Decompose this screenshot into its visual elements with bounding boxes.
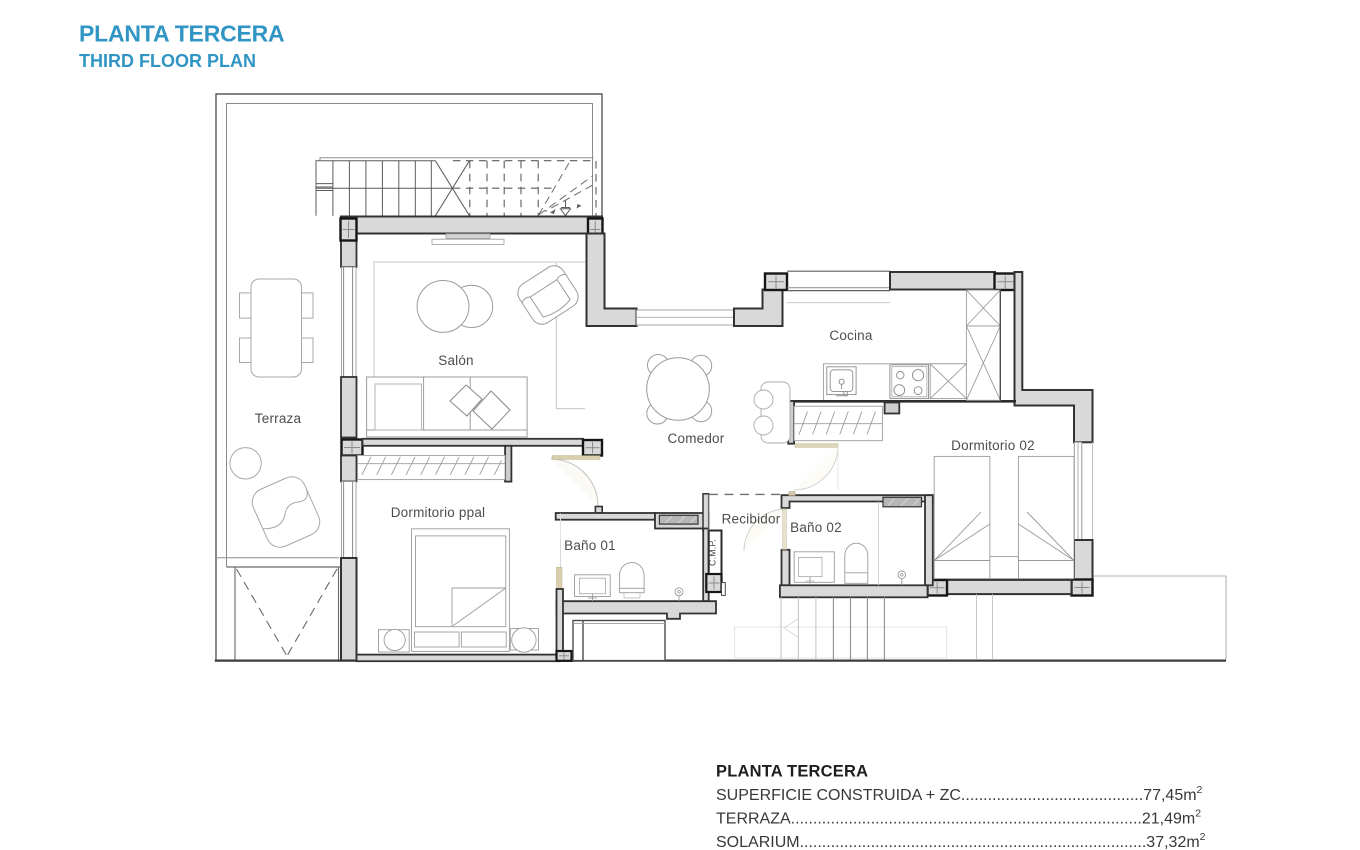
svg-text:THIRD FLOOR PLAN: THIRD FLOOR PLAN xyxy=(79,51,256,71)
svg-text:Terraza: Terraza xyxy=(255,411,302,426)
svg-text:Baño 02: Baño 02 xyxy=(790,520,842,535)
svg-text:Comedor: Comedor xyxy=(668,431,725,446)
svg-text:C.M.P.: C.M.P. xyxy=(708,539,718,566)
svg-text:Baño 01: Baño 01 xyxy=(564,538,616,553)
svg-text:PLANTA TERCERA: PLANTA TERCERA xyxy=(79,21,284,47)
svg-text:Dormitorio 02: Dormitorio 02 xyxy=(951,438,1035,453)
svg-text:TERRAZA.......................: TERRAZA.................................… xyxy=(716,808,1201,828)
svg-text:Cocina: Cocina xyxy=(829,328,873,343)
svg-text:SOLARIUM......................: SOLARIUM................................… xyxy=(716,831,1206,850)
svg-text:SUPERFICIE CONSTRUIDA + ZC....: SUPERFICIE CONSTRUIDA + ZC..............… xyxy=(716,784,1203,804)
svg-text:PLANTA TERCERA: PLANTA TERCERA xyxy=(716,763,868,781)
svg-text:Dormitorio ppal: Dormitorio ppal xyxy=(391,505,486,520)
svg-text:Recibidor: Recibidor xyxy=(722,512,781,527)
svg-text:Salón: Salón xyxy=(438,353,474,368)
